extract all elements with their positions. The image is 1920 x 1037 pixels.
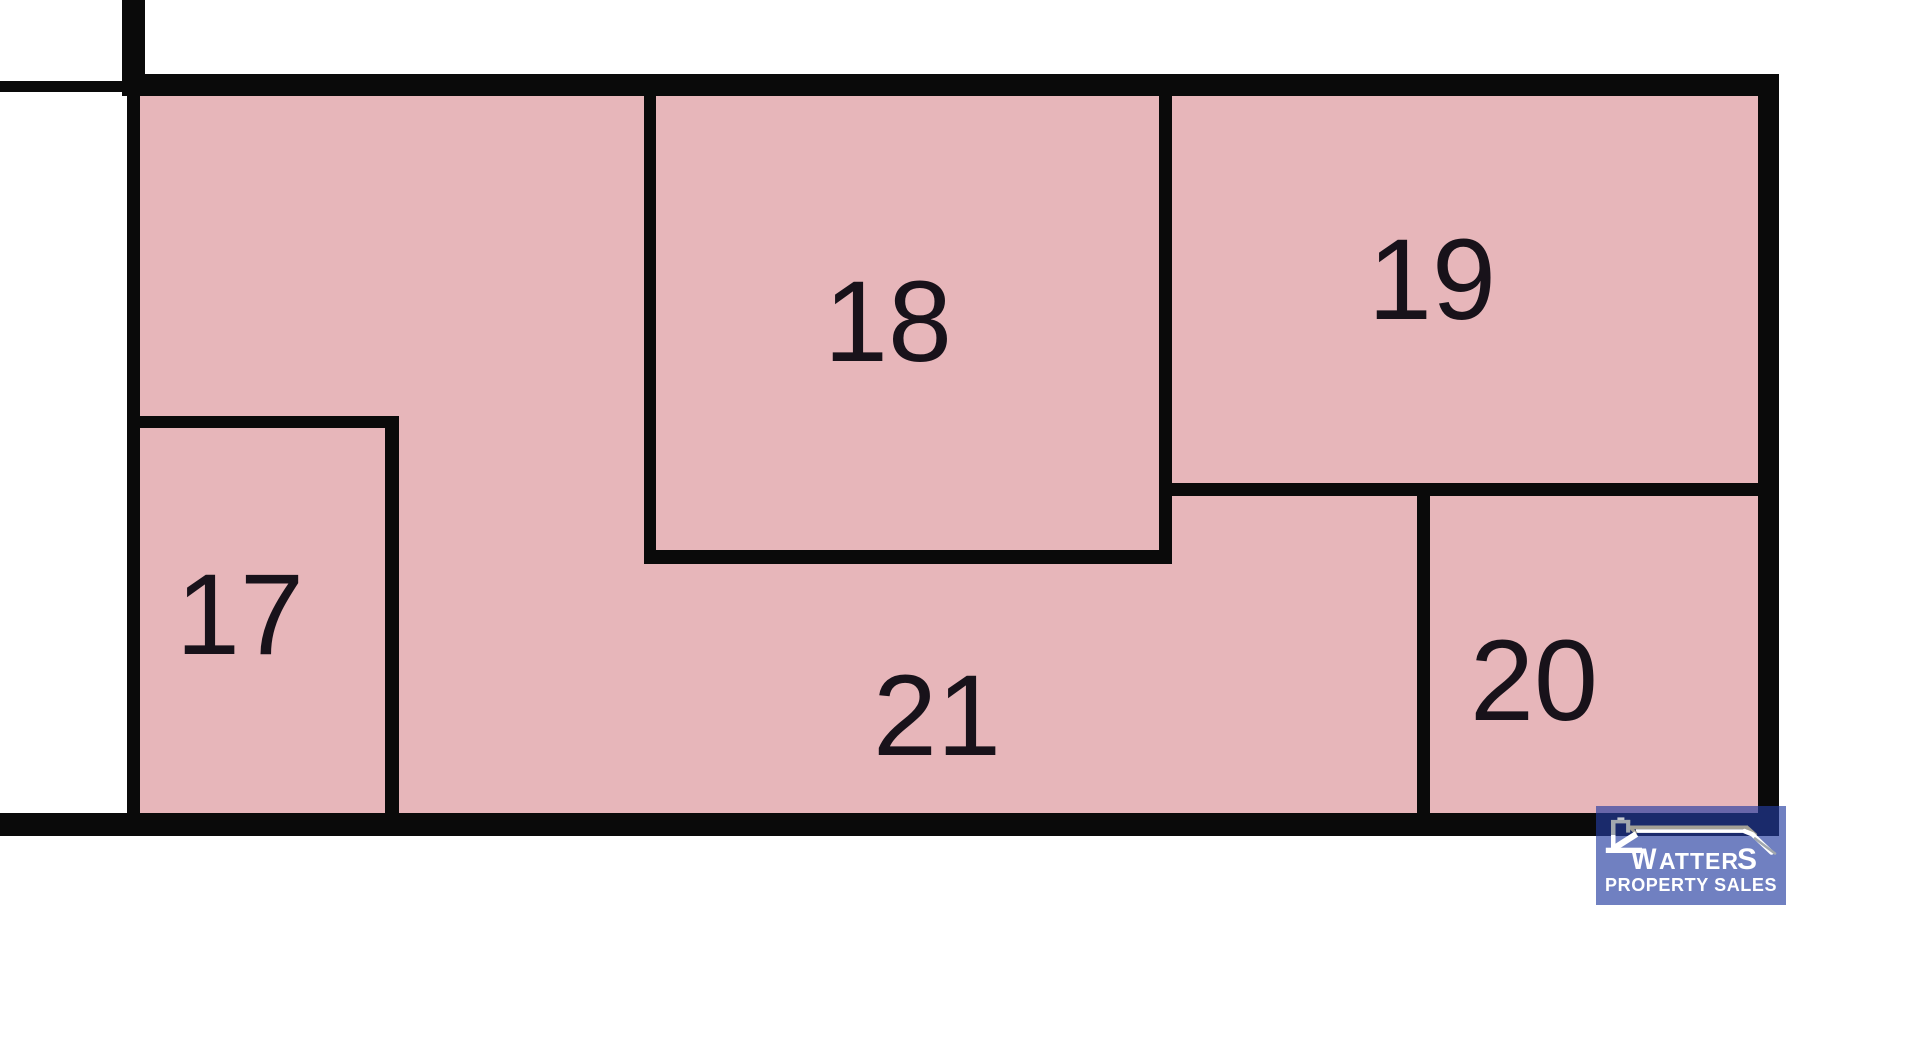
- svg-text:ATTER: ATTER: [1659, 848, 1739, 874]
- svg-text:W: W: [1631, 843, 1657, 877]
- svg-text:S: S: [1737, 843, 1757, 876]
- svg-text:PROPERTY SALES: PROPERTY SALES: [1605, 875, 1777, 895]
